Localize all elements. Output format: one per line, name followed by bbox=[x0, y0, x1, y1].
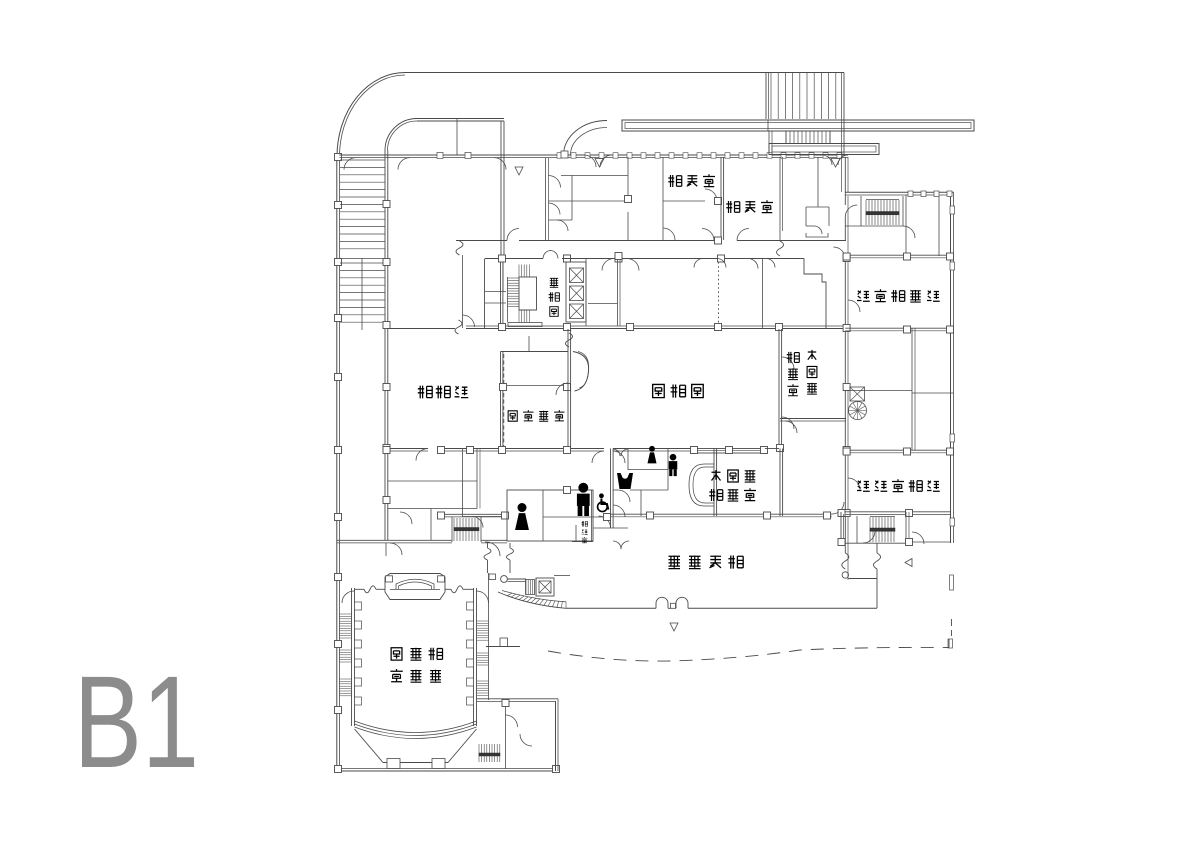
svg-text:B1: B1 bbox=[74, 649, 199, 795]
